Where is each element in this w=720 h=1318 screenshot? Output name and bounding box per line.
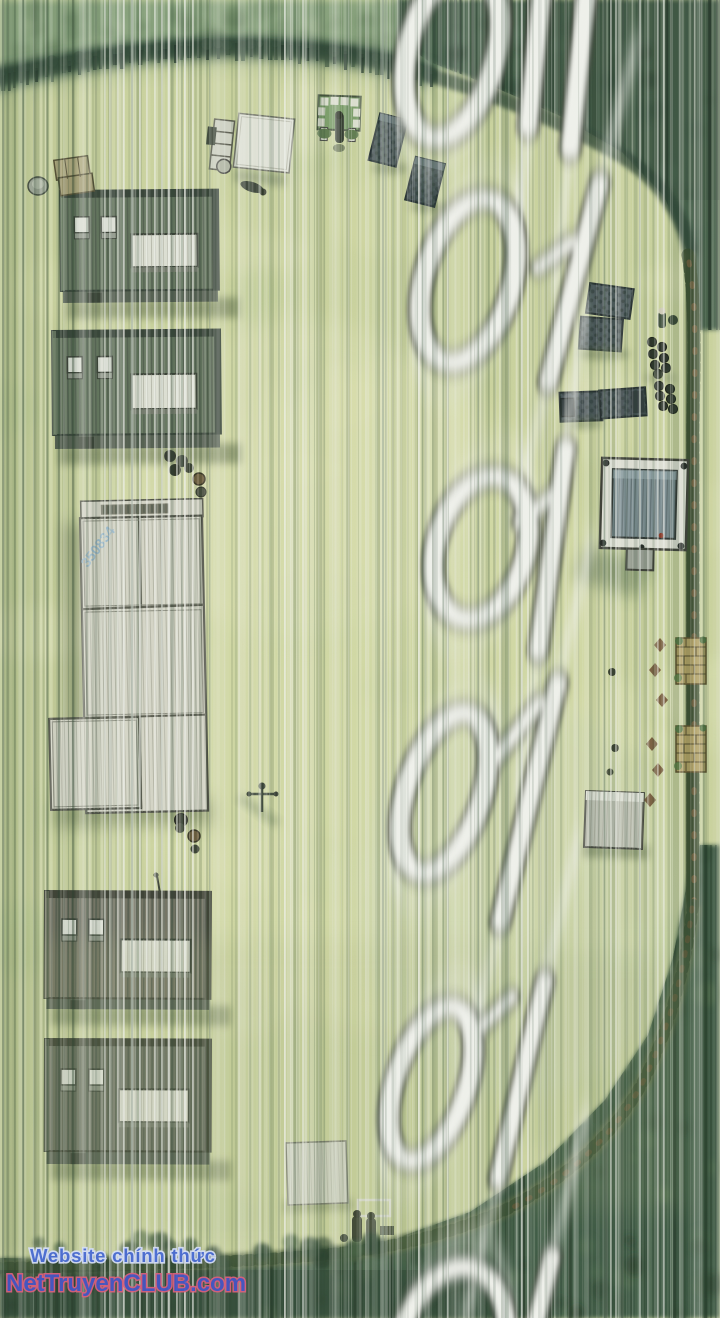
- svg-text:NetTruyenCLUB.com: NetTruyenCLUB.com: [6, 1270, 246, 1297]
- svg-text:Website chính thức: Website chính thức: [30, 1245, 216, 1266]
